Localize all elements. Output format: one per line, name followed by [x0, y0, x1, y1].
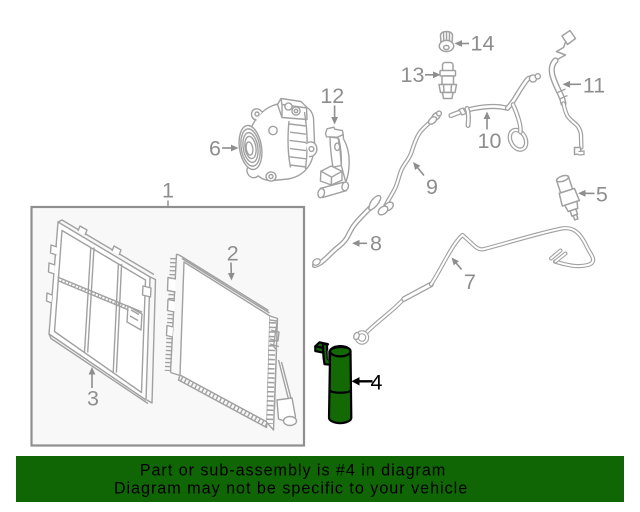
svg-text:10: 10	[478, 129, 502, 153]
svg-text:9: 9	[426, 175, 438, 199]
svg-text:Part or sub-assembly is #4 in: Part or sub-assembly is #4 in diagram	[140, 462, 446, 480]
svg-text:13: 13	[401, 63, 425, 87]
svg-text:Diagram may not be specific to: Diagram may not be specific to your vehi…	[114, 480, 468, 498]
svg-text:5: 5	[596, 183, 608, 207]
svg-text:4: 4	[371, 371, 383, 395]
svg-text:2: 2	[227, 242, 239, 266]
svg-text:6: 6	[209, 137, 221, 161]
svg-text:3: 3	[87, 387, 99, 411]
svg-text:1: 1	[162, 179, 174, 203]
svg-text:14: 14	[471, 32, 495, 56]
svg-text:7: 7	[464, 270, 476, 294]
svg-text:11: 11	[583, 74, 605, 98]
svg-text:8: 8	[370, 232, 382, 256]
svg-text:12: 12	[320, 84, 344, 108]
